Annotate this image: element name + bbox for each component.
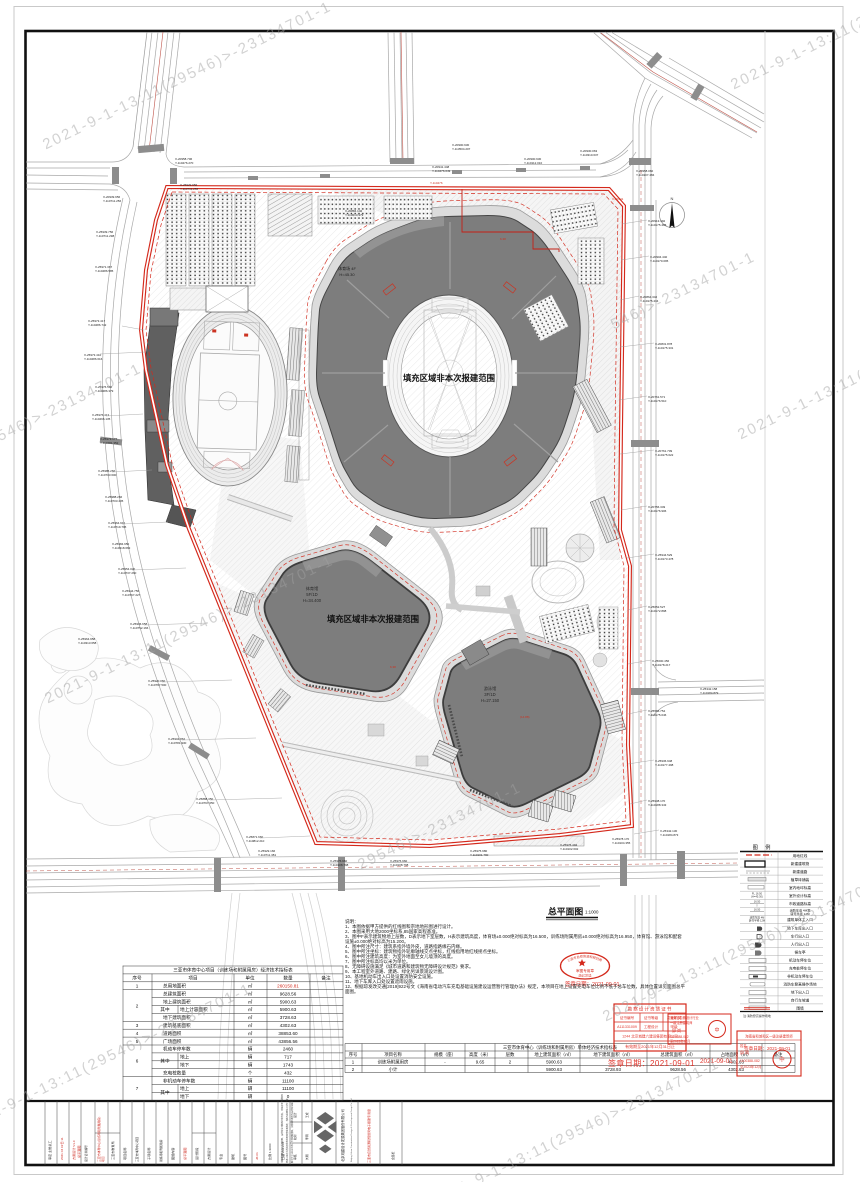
svg-text:2460: 2460 bbox=[283, 1047, 294, 1052]
svg-text:Y-110711.381: Y-110711.381 bbox=[258, 853, 276, 857]
svg-text:序号: 序号 bbox=[349, 1051, 358, 1058]
svg-text:个: 个 bbox=[248, 1070, 253, 1075]
svg-text:5900.63: 5900.63 bbox=[280, 1007, 297, 1012]
svg-text:Y-110172.898: Y-110172.898 bbox=[648, 609, 667, 613]
svg-text:一级注册建筑师: 一级注册建筑师 bbox=[670, 1020, 693, 1025]
svg-text:Y-110108.798: Y-110108.798 bbox=[390, 863, 409, 867]
svg-text:签章日期：2021-09-01: 签章日期：2021-09-01 bbox=[608, 1058, 695, 1068]
svg-text:邱 岗: 邱 岗 bbox=[672, 1027, 681, 1033]
svg-text:总建筑面积: 总建筑面积 bbox=[163, 991, 186, 998]
svg-text:9.65: 9.65 bbox=[476, 1060, 485, 1065]
svg-text:Y-113013.979: Y-113013.979 bbox=[345, 213, 364, 217]
svg-text:Y-110486.742: Y-110486.742 bbox=[88, 323, 107, 327]
svg-text:训练场附属用房: 训练场附属用房 bbox=[378, 1059, 409, 1066]
svg-text:自行车坡道: 自行车坡道 bbox=[791, 998, 810, 1003]
svg-text:38853.60: 38853.60 bbox=[278, 1031, 298, 1036]
svg-text:充电桩停车位: 充电桩停车位 bbox=[789, 966, 811, 971]
svg-text:Y-110178.217: Y-110178.217 bbox=[652, 663, 671, 667]
svg-text:Y-110752.166: Y-110752.166 bbox=[130, 626, 149, 630]
svg-text:6.38: 6.38 bbox=[390, 665, 396, 669]
svg-text:㎡: ㎡ bbox=[248, 1014, 253, 1020]
svg-text:Y-110812.210: Y-110812.210 bbox=[246, 839, 265, 843]
svg-text:项目: 项目 bbox=[188, 976, 197, 982]
svg-text:Y-110711.256: Y-110711.256 bbox=[103, 199, 121, 203]
svg-text:市政道路标高: 市政道路标高 bbox=[789, 901, 811, 906]
svg-text:16.50: 16.50 bbox=[754, 908, 761, 912]
svg-text:室外设计标高: 室外设计标高 bbox=[789, 893, 811, 898]
svg-text:设计证书编号: 设计证书编号 bbox=[84, 1145, 88, 1162]
svg-text:Y-110476.270: Y-110476.270 bbox=[175, 161, 194, 165]
svg-text:2: 2 bbox=[136, 1004, 139, 1009]
svg-text:(14.88): (14.88) bbox=[520, 715, 530, 719]
svg-text:辆: 辆 bbox=[248, 1062, 253, 1069]
svg-text:5900.63: 5900.63 bbox=[546, 1060, 562, 1065]
svg-text:Y-110108.798: Y-110108.798 bbox=[330, 863, 349, 867]
svg-text:JZ-01: JZ-01 bbox=[255, 1152, 259, 1160]
svg-text:地下: 地下 bbox=[180, 1062, 190, 1069]
svg-text:9628.56: 9628.56 bbox=[280, 992, 297, 997]
svg-text:图号: 图号 bbox=[242, 1154, 247, 1160]
svg-text:机动车停车位: 机动车停车位 bbox=[789, 958, 811, 963]
svg-text:三亚市教育局: 三亚市教育局 bbox=[110, 1141, 115, 1160]
svg-text:其中: 其中 bbox=[160, 1058, 170, 1065]
svg-text:Y-110175.405: Y-110175.405 bbox=[648, 223, 667, 227]
svg-text:中: 中 bbox=[779, 1056, 784, 1064]
svg-text:项目名称: 项目名称 bbox=[384, 1051, 402, 1058]
svg-text:规模（座）: 规模（座） bbox=[434, 1051, 456, 1058]
svg-text:1: 1 bbox=[352, 1060, 355, 1065]
svg-text:子项名称: 子项名称 bbox=[146, 1148, 151, 1160]
svg-text:Y-110313.658: Y-110313.658 bbox=[78, 641, 97, 645]
svg-text:1743: 1743 bbox=[283, 1063, 294, 1068]
svg-text:室内地坪标高: 室内地坪标高 bbox=[789, 885, 811, 890]
svg-text:1100388-082: 1100388-082 bbox=[740, 1059, 760, 1063]
svg-text:签章日期：2021-09-01: 签章日期：2021-09-01 bbox=[744, 1045, 791, 1052]
svg-text:Y-110486.585: Y-110486.585 bbox=[95, 269, 114, 273]
svg-text:Y-110175.331: Y-110175.331 bbox=[655, 346, 674, 350]
svg-text:地下建筑面积（㎡）: 地下建筑面积（㎡） bbox=[593, 1051, 633, 1058]
svg-text:A111331009: A111331009 bbox=[617, 1025, 637, 1029]
svg-text:11100: 11100 bbox=[282, 1086, 295, 1091]
svg-text:Y-110173.478: Y-110173.478 bbox=[655, 557, 674, 561]
svg-text:训练场和附属用房: 训练场和附属用房 bbox=[159, 1139, 163, 1162]
svg-text:消防车登高操作场地: 消防车登高操作场地 bbox=[783, 982, 816, 987]
svg-text:辆: 辆 bbox=[248, 1093, 253, 1100]
svg-text:三亚市体育中心项目: 三亚市体育中心项目 bbox=[135, 1137, 139, 1162]
svg-text:有效期至2021年12月31日止: 有效期至2021年12月31日止 bbox=[625, 1043, 675, 1049]
svg-text:Y-110767.500: Y-110767.500 bbox=[148, 683, 167, 687]
svg-text:Y-110711.298: Y-110711.298 bbox=[96, 234, 114, 238]
svg-text:Y-110737.260: Y-110737.260 bbox=[118, 571, 137, 575]
svg-text:7: 7 bbox=[136, 1086, 139, 1091]
svg-text:地上: 地上 bbox=[180, 1054, 190, 1060]
svg-text:充电桩数量: 充电桩数量 bbox=[163, 1069, 186, 1076]
svg-text:至2023年12月: 至2023年12月 bbox=[740, 1064, 762, 1069]
svg-text:Y-110781.930: Y-110781.930 bbox=[168, 741, 187, 745]
svg-text:Y-110104.355: Y-110104.355 bbox=[612, 841, 631, 845]
svg-text:2: 2 bbox=[352, 1067, 355, 1072]
svg-text:数量: 数量 bbox=[283, 975, 293, 982]
svg-text:Y-110112.010: Y-110112.010 bbox=[524, 161, 542, 165]
svg-text:Y-110184.879: Y-110184.879 bbox=[700, 691, 719, 695]
svg-text:Y-110711.256: Y-110711.256 bbox=[180, 187, 198, 191]
svg-text:㎡: ㎡ bbox=[248, 1022, 253, 1028]
svg-text:3: 3 bbox=[136, 1023, 139, 1028]
svg-text:1: 1 bbox=[136, 983, 139, 988]
svg-text:总建筑面积（㎡）: 总建筑面积（㎡） bbox=[660, 1051, 695, 1058]
svg-text:海南省和城和区一级注册建筑师: 海南省和城和区一级注册建筑师 bbox=[745, 1034, 793, 1039]
svg-text:植草砖铺装: 植草砖铺装 bbox=[791, 877, 810, 882]
svg-text:Y-110719.795: Y-110719.795 bbox=[108, 525, 127, 529]
svg-text:总平面图: 总平面图 bbox=[76, 1146, 81, 1158]
svg-text:Y-110476.049: Y-110476.049 bbox=[432, 169, 451, 173]
svg-text:非机动车停车位: 非机动车停车位 bbox=[787, 974, 813, 979]
svg-text:Y-110175.622: Y-110175.622 bbox=[655, 453, 674, 457]
svg-text:新建建筑物: 新建建筑物 bbox=[791, 861, 810, 866]
svg-text:设计阶段: 设计阶段 bbox=[194, 1148, 199, 1160]
svg-text:广场面积: 广场面积 bbox=[163, 1038, 182, 1045]
svg-text:Y-113504.207: Y-113504.207 bbox=[452, 147, 471, 151]
svg-text:260150.81: 260150.81 bbox=[277, 983, 299, 988]
svg-text:43856.56: 43856.56 bbox=[278, 1039, 298, 1044]
svg-text:会签栏: 会签栏 bbox=[391, 1151, 395, 1160]
svg-text:根据三亚市自然资源和规划局审查意见修改，本图与报建电子文件一: 根据三亚市自然资源和规划局审查意见修改，本图与报建电子文件一致 bbox=[285, 1099, 289, 1163]
svg-text:三亚市自然资源和规划局电子报建专用章: 三亚市自然资源和规划局电子报建专用章 bbox=[366, 1109, 371, 1163]
svg-text:序号: 序号 bbox=[132, 975, 142, 982]
svg-text:三亚市体育中心项目（训练场和附属用房）经济技术指标表: 三亚市体育中心项目（训练场和附属用房）经济技术指标表 bbox=[173, 967, 293, 974]
svg-text:Y-110767.227: Y-110767.227 bbox=[122, 593, 141, 597]
svg-text:Y-110170.095: Y-110170.095 bbox=[650, 259, 669, 263]
svg-text:717: 717 bbox=[284, 1055, 292, 1060]
svg-text:建筑: 建筑 bbox=[230, 1154, 235, 1160]
svg-text:Y-110176.906: Y-110176.906 bbox=[648, 509, 667, 513]
svg-text:用地红线: 用地红线 bbox=[793, 853, 808, 858]
svg-text:Y-110177.498: Y-110177.498 bbox=[655, 763, 674, 767]
svg-text:小计: 小计 bbox=[389, 1066, 398, 1073]
svg-text:高度（米）: 高度（米） bbox=[469, 1051, 491, 1058]
svg-text:Y-110175.046: Y-110175.046 bbox=[648, 713, 667, 717]
svg-text:图中尺寸以标注为准，不得按图量取，如有疑问及时与设计单位联系: 图中尺寸以标注为准，不得按图量取，如有疑问及时与设计单位联系 bbox=[290, 1101, 294, 1163]
svg-text:4302.63: 4302.63 bbox=[280, 1023, 297, 1028]
svg-text:Y-110310.637: Y-110310.637 bbox=[580, 153, 599, 157]
svg-text:5900.63: 5900.63 bbox=[280, 999, 297, 1004]
svg-text:Y-110703.600: Y-110703.600 bbox=[98, 473, 117, 477]
svg-text:辆: 辆 bbox=[248, 1054, 253, 1061]
svg-text:图纸内容: 图纸内容 bbox=[170, 1148, 175, 1160]
svg-text:比例 1:1000: 比例 1:1000 bbox=[267, 1143, 272, 1160]
svg-text:机动车停车数: 机动车停车数 bbox=[163, 1046, 191, 1053]
svg-text:其中: 其中 bbox=[160, 1006, 170, 1013]
svg-text:围墙: 围墙 bbox=[796, 1006, 804, 1011]
svg-text:候车亭: 候车亭 bbox=[794, 949, 805, 954]
svg-text:证书等级: 证书等级 bbox=[644, 1015, 659, 1020]
svg-text:地下: 地下 bbox=[180, 1093, 190, 1100]
svg-text:地上建筑面积: 地上建筑面积 bbox=[163, 998, 191, 1005]
svg-text:至2023年12月: 至2023年12月 bbox=[670, 1039, 690, 1044]
svg-text:Y-110107.484: Y-110107.484 bbox=[636, 173, 655, 177]
svg-text:总用地面积: 总用地面积 bbox=[163, 982, 186, 989]
svg-text:㎡: ㎡ bbox=[248, 998, 253, 1004]
svg-text:6: 6 bbox=[136, 1059, 139, 1064]
svg-text:3728.63: 3728.63 bbox=[280, 1015, 297, 1020]
svg-text:Y-110496.135: Y-110496.135 bbox=[92, 417, 111, 421]
svg-text:辆: 辆 bbox=[248, 1085, 253, 1092]
svg-text:专业: 专业 bbox=[218, 1154, 223, 1160]
svg-text:Y-110102.602: Y-110102.602 bbox=[560, 847, 579, 851]
svg-text:5900.63: 5900.63 bbox=[546, 1067, 562, 1072]
svg-text:层数: 层数 bbox=[506, 1051, 515, 1058]
svg-text:(H=45.30): (H=45.30) bbox=[751, 895, 763, 899]
svg-text:㎡: ㎡ bbox=[248, 1030, 253, 1036]
svg-text:项目: 项目 bbox=[101, 1156, 105, 1162]
svg-text:Y-110703.405: Y-110703.405 bbox=[105, 499, 124, 503]
svg-text:Beijing Urban Construction Des: Beijing Urban Construction Design & Deve… bbox=[350, 1098, 353, 1162]
svg-text:㎡: ㎡ bbox=[248, 1038, 253, 1044]
svg-text:X-20941: X-20941 bbox=[612, 197, 624, 201]
svg-text:项目名称: 项目名称 bbox=[122, 1148, 127, 1160]
svg-text:新建道路: 新建道路 bbox=[793, 869, 808, 874]
svg-text:▽: ▽ bbox=[756, 905, 759, 908]
svg-text:16.50: 16.50 bbox=[754, 900, 761, 904]
svg-text:王成: 王成 bbox=[305, 1112, 309, 1118]
svg-text:备注: 备注 bbox=[321, 975, 331, 982]
svg-text:Y-110486.616: Y-110486.616 bbox=[84, 357, 103, 361]
svg-text:总平面图: 总平面图 bbox=[182, 1148, 187, 1160]
svg-text:Y-110101.790: Y-110101.790 bbox=[470, 853, 489, 857]
svg-text:工程设计: 工程设计 bbox=[644, 1024, 659, 1029]
svg-text:0: 0 bbox=[287, 1094, 290, 1099]
svg-text:Y-110797.650: Y-110797.650 bbox=[196, 801, 215, 805]
svg-text:辆: 辆 bbox=[248, 1077, 253, 1084]
svg-text:海南省勘察设计行业: 海南省勘察设计行业 bbox=[670, 1015, 699, 1020]
svg-text:李明: 李明 bbox=[305, 1134, 309, 1140]
svg-text:11100: 11100 bbox=[282, 1078, 295, 1083]
svg-text:1100388-082: 1100388-082 bbox=[670, 1035, 689, 1039]
svg-text:2: 2 bbox=[509, 1060, 512, 1065]
svg-text:三亚市体育中心（训练场和附属用房）单体经济技术指标表: 三亚市体育中心（训练场和附属用房）单体经济技术指标表 bbox=[503, 1044, 618, 1051]
svg-text:审定 主管总工: 审定 主管总工 bbox=[47, 1141, 52, 1160]
svg-text:2021 04 02日 11: 2021 04 02日 11 bbox=[60, 1137, 64, 1160]
svg-text:Y-110481.352: Y-110481.352 bbox=[100, 441, 119, 445]
svg-text:人行出入口: 人行出入口 bbox=[791, 941, 810, 946]
svg-text:Y-110476: Y-110476 bbox=[430, 181, 443, 185]
svg-text:地上: 地上 bbox=[180, 1085, 190, 1091]
svg-text:方案设计: 方案设计 bbox=[206, 1148, 211, 1160]
svg-text:Y-110318.663: Y-110318.663 bbox=[112, 546, 131, 550]
svg-text:三亚市体育中心(训练场和附属用房): 三亚市体育中心(训练场和附属用房) bbox=[96, 1117, 101, 1162]
svg-text:其中: 其中 bbox=[160, 1089, 170, 1096]
svg-text:6.38: 6.38 bbox=[500, 237, 506, 241]
svg-text:注:消防登高操作场地: 注:消防登高操作场地 bbox=[743, 1013, 771, 1018]
svg-text:㎡: ㎡ bbox=[248, 1006, 253, 1012]
svg-text:地下出入口: 地下出入口 bbox=[791, 990, 810, 995]
svg-text:Y-110188.343: Y-110188.343 bbox=[648, 803, 667, 807]
svg-text:地上建筑面积（㎡）: 地上建筑面积（㎡） bbox=[534, 1051, 574, 1058]
svg-text:辆: 辆 bbox=[248, 1046, 253, 1053]
svg-text:非机动车停车数: 非机动车停车数 bbox=[163, 1077, 196, 1084]
svg-text:432: 432 bbox=[284, 1070, 292, 1075]
svg-text:方案设计 V1.0: 方案设计 V1.0 bbox=[71, 1140, 76, 1160]
svg-text:图 例: 图 例 bbox=[753, 843, 774, 851]
svg-text:中: 中 bbox=[714, 1027, 719, 1034]
svg-text:北京城建设计发展集团股份有限公司: 北京城建设计发展集团股份有限公司 bbox=[340, 1109, 345, 1162]
svg-text:刘刚: 刘刚 bbox=[305, 1154, 309, 1160]
svg-text:-: - bbox=[444, 1060, 446, 1065]
svg-text:Y-110176.510: Y-110176.510 bbox=[648, 399, 667, 403]
svg-text:Y-110184.873: Y-110184.873 bbox=[660, 833, 679, 837]
